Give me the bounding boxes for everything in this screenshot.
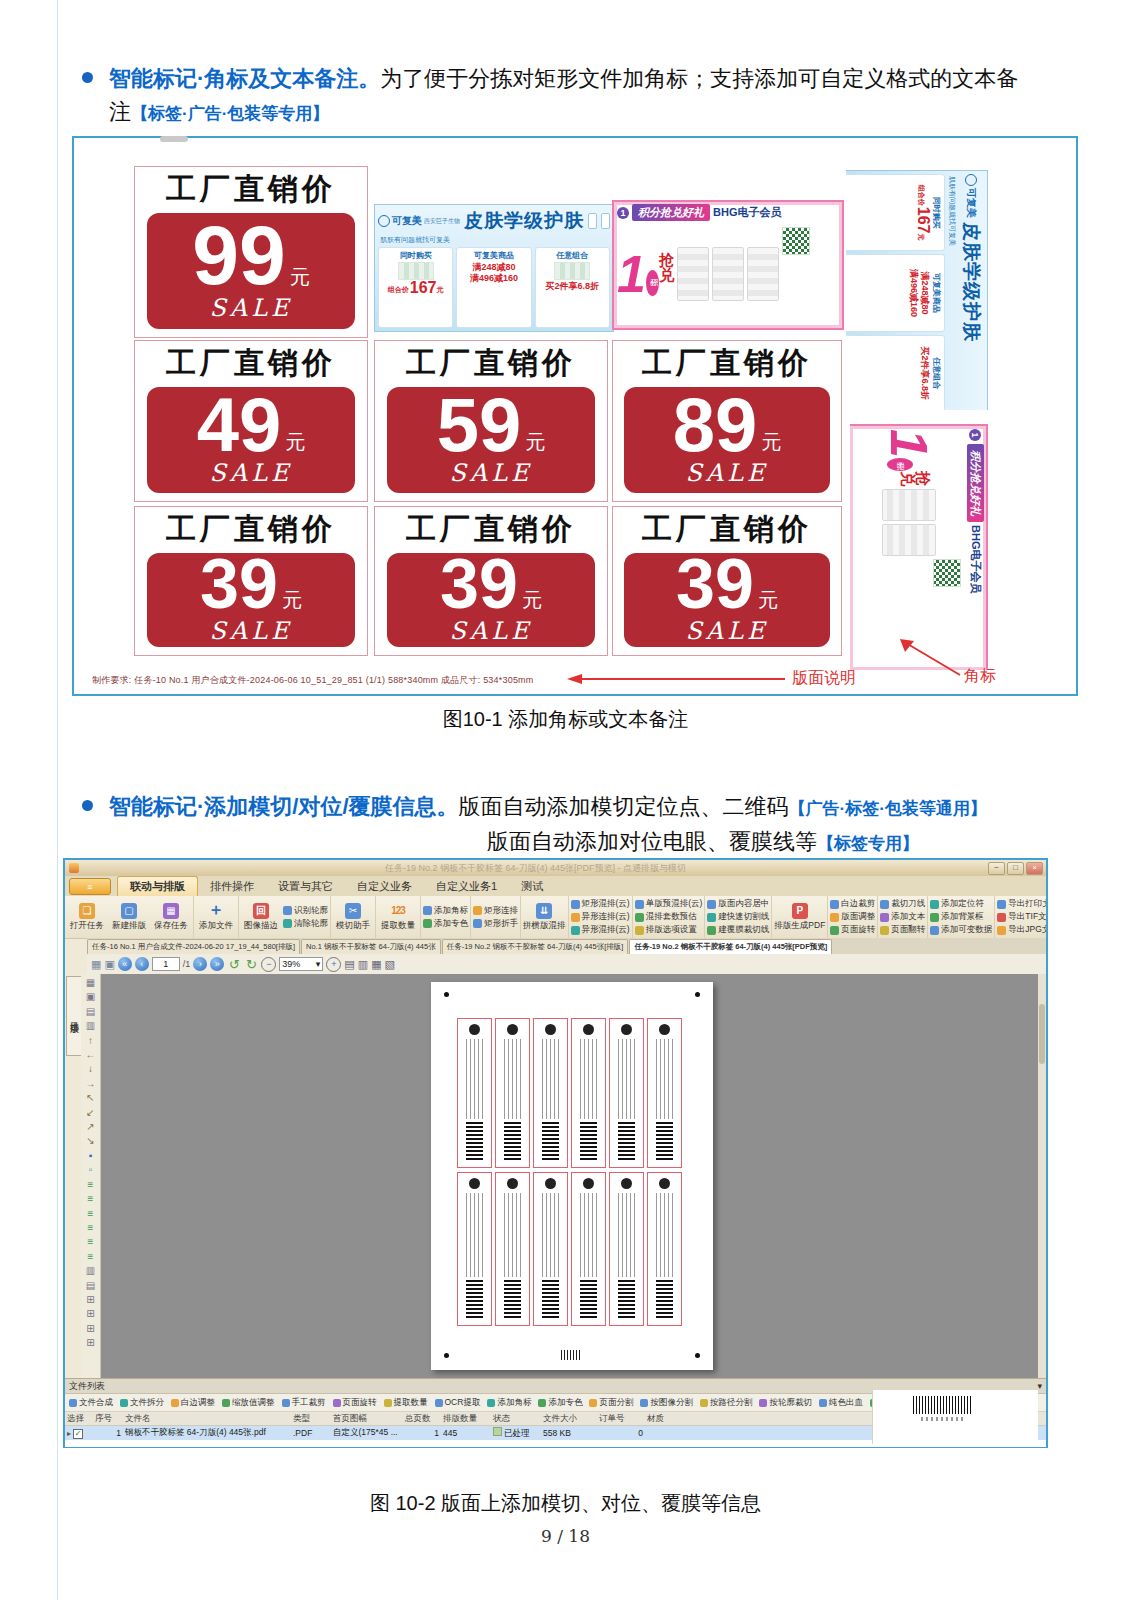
export-jpg-icon <box>997 926 1006 935</box>
label-barcode <box>466 1122 483 1162</box>
preview-nav-bar: ▦ ▣ « ‹ 1 /1 › » ↺ ↻ − 39%▾ + ▤ ▥ ▦ ▧ <box>87 954 1046 975</box>
price-header: 工厂直销价 <box>166 169 336 210</box>
doc-tab-4-pdf-preview[interactable]: 任务-19 No.2 钢板不干胶标签 64-刀版(4) 445张[PDF预览] <box>629 939 832 954</box>
extract-qty-icon <box>384 1399 392 1407</box>
grid-tool-icon[interactable]: ▦ <box>86 976 95 990</box>
crop-by-outline-icon <box>759 1399 767 1407</box>
app-logo-icon <box>69 863 79 873</box>
figure1-screenshot: 工厂直销价 99元 SALE 工厂直销价 49元SALE 工厂直销价 59元SA… <box>72 136 1078 696</box>
file-list-title: 文件列表 <box>69 1380 105 1393</box>
layout-facing-icon[interactable]: ▥ <box>358 958 368 971</box>
window-title: 任务-19 No.2 钢板不干胶标签 64-刀版(4) 445张[PDF预览] … <box>83 862 988 875</box>
title-bar: 任务-19 No.2 钢板不干胶标签 64-刀版(4) 445张[PDF预览] … <box>65 860 1046 877</box>
rotate-right-button[interactable]: ↻ <box>244 957 258 971</box>
preview-barcode <box>913 1396 971 1414</box>
page-total-label: /1 <box>183 959 191 969</box>
rect-fold-icon <box>473 919 482 928</box>
file-merge-icon <box>69 1399 77 1407</box>
recognize-outline-icon <box>283 906 292 915</box>
thumbnail-view-icon[interactable]: ▦ <box>91 958 101 971</box>
align-top-icon[interactable]: ≡ <box>88 1221 94 1235</box>
align-left-icon[interactable]: ≡ <box>88 1178 94 1192</box>
page-number: 9 / 18 <box>0 1526 1131 1546</box>
snap-cell-icon[interactable]: ▫ <box>89 1163 93 1177</box>
product-bottle-icon <box>588 213 597 229</box>
split-by-path-icon <box>700 1399 708 1407</box>
points-ad-rotated: 1积分抢兑好礼BHG电子会员 1积分抢兑 <box>850 424 988 670</box>
rect-mix-cloud-icon <box>571 900 580 909</box>
table-layout-icon[interactable]: ⊞ <box>86 1307 94 1321</box>
app-window: 任务-19 No.2 钢板不干胶标签 64-刀版(4) 445张[PDF预览] … <box>65 860 1046 1446</box>
bullet2-body2: 版面自动添加对位电眼、覆膜线等 <box>487 829 817 854</box>
add-text-icon <box>880 913 889 922</box>
recognize-outline-button[interactable]: 识别轮廓 <box>283 905 328 917</box>
image-stroke-button[interactable]: 回图像描边 <box>241 903 281 932</box>
image-stroke-icon: 回 <box>253 903 269 919</box>
sheet-barcode-mark <box>561 1350 581 1360</box>
bullet2-tag2: 【标签专用】 <box>817 834 919 853</box>
move-left-icon[interactable]: ← <box>86 1048 96 1062</box>
center-content-icon <box>707 900 716 909</box>
page-flip-icon <box>880 926 889 935</box>
move-up-left-icon[interactable]: ↖ <box>86 1091 94 1105</box>
split-by-path-button[interactable]: 按路径分割 <box>700 1397 753 1409</box>
file-merge-button[interactable]: 文件合成 <box>69 1397 113 1409</box>
imposed-sheet <box>431 982 713 1370</box>
label-item <box>647 1172 682 1326</box>
add-background-frame-button[interactable]: 添加背景框 <box>930 911 992 923</box>
table-layout-icon[interactable]: ⊞ <box>86 1322 94 1336</box>
bullet1-body: 为了便于分拣对矩形文件加角标；支持添加可自定义格式的文本备 <box>380 66 1018 91</box>
single-plate-premix-button[interactable]: 单版预混排(云) <box>635 898 703 910</box>
shape-mix-cloud-button[interactable]: 异形混排(云) <box>571 924 630 936</box>
label-logo-icon <box>469 1024 480 1035</box>
preview-canvas[interactable] <box>101 974 1038 1378</box>
new-imposition-icon: ▢ <box>121 903 137 919</box>
page-split-icon <box>589 1399 597 1407</box>
sale-label: SALE <box>209 294 292 322</box>
skincare-ad-rotated: 可复美 皮肤学级护肤 肌肤有问题就找可复美 同时购买组合价167元 可复美商品满… <box>846 170 988 410</box>
scale-adjust-button[interactable]: 缩放值调整 <box>222 1397 275 1409</box>
mixed-imposition-button[interactable]: ⇊拼横版混排 <box>523 903 566 932</box>
solid-bleed-icon <box>819 1399 827 1407</box>
save-task-button[interactable]: ▦保存任务 <box>151 903 191 932</box>
canvas-scrollbar[interactable] <box>1038 974 1046 1378</box>
app-menu-button[interactable]: ≡ <box>69 878 111 895</box>
bullet-icon <box>82 72 93 83</box>
mix-count-estimate-button[interactable]: 混排套数预估 <box>635 911 703 923</box>
add-corner-mark-button[interactable]: 添加角标 <box>487 1397 531 1409</box>
move-up-right-icon[interactable]: ↗ <box>86 1120 94 1134</box>
status-label: 已处理 <box>504 1428 530 1438</box>
single-plate-premix-icon <box>635 900 644 909</box>
kefumei-logo-icon <box>965 174 977 186</box>
clear-outline-icon <box>283 919 292 928</box>
prev-page-button[interactable]: ‹ <box>135 957 149 971</box>
mix-count-estimate-icon <box>635 913 644 922</box>
manual-crop-button[interactable]: 手工裁剪 <box>282 1397 326 1409</box>
figure2-caption: 图 10-2 版面上添加模切、对位、覆膜等信息 <box>0 1490 1131 1517</box>
registration-dot <box>695 992 700 997</box>
imposition-options-icon <box>635 926 644 935</box>
close-button[interactable]: × <box>1026 862 1043 875</box>
callout-layout-note: 版面说明 <box>792 668 856 689</box>
doc-tab-1[interactable]: 任务-16 No.1 用户合成文件-2024-06-20 17_19_44_58… <box>87 939 300 954</box>
registration-dot <box>444 1353 449 1358</box>
label-item <box>495 1172 530 1326</box>
white-margin-crop-icon <box>830 900 839 909</box>
distribute-h-icon[interactable]: ▥ <box>86 1264 95 1278</box>
ocr-extract-button[interactable]: OCR提取 <box>435 1397 481 1409</box>
add-spot-color-button[interactable]: 添加专色 <box>538 1397 582 1409</box>
add-corner-mark-button[interactable]: 添加角标 <box>423 905 468 917</box>
ad-title: 皮肤学级护肤 <box>464 208 584 234</box>
bullet2-body: 版面自动添加模切定位点、二维码 <box>459 794 789 819</box>
add-file-icon: ＋ <box>208 903 224 919</box>
snap-grid-icon[interactable]: ▪ <box>89 1149 93 1163</box>
bullet1-body2: 注 <box>109 99 131 124</box>
bullet-icon <box>82 800 93 811</box>
page-left-rule <box>57 0 58 1600</box>
tab-custom-business-1[interactable]: 自定义业务1 <box>424 877 509 896</box>
layout-grid-icon[interactable]: ▦ <box>371 958 381 971</box>
move-down-right-icon[interactable]: ↘ <box>86 1134 94 1148</box>
laminate-cut-line-button[interactable]: 建覆膜裁切线 <box>707 924 769 936</box>
row-marker-icon: ▸ <box>67 1429 71 1438</box>
distribute-v-icon[interactable]: ▤ <box>86 1279 95 1293</box>
rect-serial-button[interactable]: 矩形连排 <box>473 905 518 917</box>
add-spot-color-icon <box>423 919 432 928</box>
label-item <box>533 1172 568 1326</box>
figure1-caption: 图10-1 添加角标或文本备注 <box>0 706 1131 733</box>
preview-barcode-caption <box>921 1417 963 1421</box>
zoom-in-button[interactable]: + <box>326 957 341 972</box>
white-margin-adjust-button[interactable]: 白边调整 <box>171 1397 215 1409</box>
extract-quantity-icon: 123 <box>390 903 406 919</box>
rotate-left-button[interactable]: ↺ <box>227 957 241 971</box>
align-bottom-icon[interactable]: ≡ <box>88 1250 94 1264</box>
diecut-helper-button[interactable]: ✂模切助手 <box>333 903 373 932</box>
add-registration-mark-icon <box>930 900 939 909</box>
page-rotate-icon <box>830 926 839 935</box>
add-corner-mark-icon <box>487 1399 495 1407</box>
open-task-button[interactable]: ❏打开任务 <box>67 903 107 932</box>
open-task-icon: ❏ <box>79 903 95 919</box>
minimize-button[interactable]: − <box>988 862 1005 875</box>
label-preview-pane <box>872 1390 1038 1444</box>
label-item <box>457 1018 492 1168</box>
bullet-corner-mark: 智能标记·角标及文本备注。为了便于分拣对矩形文件加角标；支持添加可自定义格式的文… <box>82 62 1082 130</box>
figure1-notch <box>160 136 188 142</box>
page-rotate-button[interactable]: 页面旋转 <box>333 1397 377 1409</box>
cut-knife-line-button[interactable]: 裁切刀线 <box>880 898 925 910</box>
label-item <box>533 1018 568 1168</box>
move-up-icon[interactable]: ↑ <box>88 1034 93 1048</box>
qr-code <box>933 559 961 587</box>
diecut-helper-icon: ✂ <box>345 903 361 919</box>
new-imposition-button[interactable]: ▢新建排版 <box>109 903 149 932</box>
price-box: 99元 SALE <box>147 213 356 329</box>
price-unit: 元 <box>290 269 310 286</box>
maximize-button[interactable]: □ <box>1007 862 1024 875</box>
page-flip-button[interactable]: 页面翻转 <box>880 924 925 936</box>
ribbon-tab-bar: ≡ 联动与排版 排件操作 设置与其它 自定义业务 自定义业务1 测试 <box>65 876 1046 896</box>
shape-serial-cloud-button[interactable]: 异形连排(云) <box>571 911 630 923</box>
label-text-lines <box>466 1039 483 1119</box>
quick-cut-line-icon <box>707 913 716 922</box>
dropdown-arrow-icon: ▾ <box>316 959 321 969</box>
solid-bleed-button[interactable]: 纯色出血 <box>819 1397 863 1409</box>
split-by-image-icon <box>640 1399 648 1407</box>
laminate-cut-line-icon <box>707 926 716 935</box>
add-file-button[interactable]: ＋添加文件 <box>196 903 236 932</box>
gift-product-thumb <box>747 247 779 301</box>
cut-knife-line-icon <box>880 900 889 909</box>
table-layout-icon[interactable]: ⊞ <box>86 1336 94 1350</box>
manual-page: 智能标记·角标及文本备注。为了便于分拣对矩形文件加角标；支持添加可自定义格式的文… <box>0 0 1131 1600</box>
move-down-icon[interactable]: ↓ <box>88 1062 93 1076</box>
ribbon-toolbar: ❏打开任务 ▢新建排版 ▦保存任务 ＋添加文件 回图像描边 识别轮廓 清除轮廓 … <box>65 896 1046 939</box>
selected-imposition-side-tab[interactable]: 已选排版 <box>66 976 82 1056</box>
add-registration-mark-button[interactable]: 添加定位符 <box>930 898 992 910</box>
table-layout-icon[interactable]: ⊞ <box>86 1293 94 1307</box>
member-label: BHG电子会员 <box>713 205 781 220</box>
callout-corner-mark: 角标 <box>964 666 996 687</box>
bullet-diecut-mark: 智能标记·添加模切/对位/覆膜信息。版面自动添加模切定位点、二维码【广告·标签·… <box>82 790 1082 860</box>
layout-adjust-button[interactable]: 版面调整 <box>830 911 875 923</box>
white-margin-adjust-icon <box>171 1399 179 1407</box>
export-tif-button[interactable]: 导出TIF文件 <box>997 911 1046 923</box>
kefumei-logo-icon <box>378 215 390 227</box>
shape-serial-cloud-icon <box>571 913 580 922</box>
points-ad-title: 积分抢兑好礼 <box>632 204 710 221</box>
registration-dot <box>695 1353 700 1358</box>
label-item <box>571 1172 606 1326</box>
skincare-ad: 可复美西安巨子生物 皮肤学级护肤 肌肤有问题就找可复美 同时购买 组合价167元… <box>374 204 614 332</box>
export-tif-icon <box>997 913 1006 922</box>
export-print-file-button[interactable]: 导出打印文件 <box>997 898 1046 910</box>
rect-serial-icon <box>473 906 482 915</box>
label-item <box>571 1018 606 1168</box>
label-item <box>457 1172 492 1326</box>
tab-settings-other[interactable]: 设置与其它 <box>266 877 345 896</box>
export-jpg-button[interactable]: 导出JPG文件 <box>997 924 1046 936</box>
tab-linkage-imposition[interactable]: 联动与排版 <box>117 876 198 896</box>
qr-code <box>782 227 810 255</box>
gift-product-thumb <box>882 524 936 556</box>
clear-outline-button[interactable]: 清除轮廓 <box>283 918 328 930</box>
layout-tile-icon[interactable]: ▧ <box>385 958 395 971</box>
price-tag-89: 工厂直销价 89元SALE <box>612 340 842 502</box>
price-tag-49: 工厂直销价 49元SALE <box>134 340 368 502</box>
page-split-button[interactable]: 页面分割 <box>589 1397 633 1409</box>
tab-test[interactable]: 测试 <box>509 877 555 896</box>
rect-fold-button[interactable]: 矩形折手 <box>473 918 518 930</box>
product-bottle-icon <box>601 213 610 229</box>
rect-mix-cloud-button[interactable]: 矩形混排(云) <box>571 898 630 910</box>
move-right-icon[interactable]: → <box>86 1077 96 1091</box>
file-split-button[interactable]: 文件拆分 <box>120 1397 164 1409</box>
manual-crop-icon <box>282 1399 290 1407</box>
zoom-out-button[interactable]: − <box>261 957 276 972</box>
shape-mix-cloud-icon <box>571 926 580 935</box>
label-item <box>609 1018 644 1168</box>
layout-single-icon[interactable]: ▤ <box>344 958 354 971</box>
zoom-level-select[interactable]: 39%▾ <box>279 957 323 971</box>
points-badge-icon: 1 <box>617 207 629 219</box>
ocr-extract-icon <box>435 1399 443 1407</box>
page-rotate-icon <box>333 1399 341 1407</box>
save-task-icon: ▦ <box>163 903 179 919</box>
page-number-input[interactable]: 1 <box>152 957 180 971</box>
left-tool-strip: ▦ ▣ ▤ ▥ ↑ ← ↓ → ↖ ↙ ↗ ↘ ▪ ▫ ≡ ≡ ≡ ≡ ≡ ≡ <box>81 974 101 1378</box>
panel-collapse-button[interactable]: ▾ <box>1037 1381 1042 1391</box>
scale-adjust-icon <box>222 1399 230 1407</box>
align-middle-icon[interactable]: ≡ <box>88 1235 94 1249</box>
points-ad: 1 积分抢兑好礼 BHG电子会员 1积分抢兑 <box>612 200 844 330</box>
add-corner-mark-icon <box>423 906 432 915</box>
crop-by-outline-button[interactable]: 按轮廓裁切 <box>759 1397 812 1409</box>
brand-name: 可复美 <box>392 214 422 228</box>
extract-qty-button[interactable]: 提取数量 <box>384 1397 428 1409</box>
add-variable-data-button[interactable]: 添加可变数据 <box>930 924 992 936</box>
gift-product-thumb <box>882 489 936 521</box>
tab-custom-business[interactable]: 自定义业务 <box>345 877 424 896</box>
price-tag-39b: 工厂直销价 39元SALE <box>374 506 608 656</box>
layout-adjust-icon <box>830 913 839 922</box>
align-right-icon[interactable]: ≡ <box>88 1207 94 1221</box>
registration-dot <box>444 992 449 997</box>
imposition-options-button[interactable]: 排版选项设置 <box>635 924 703 936</box>
label-item <box>647 1018 682 1168</box>
price-tag-39a: 工厂直销价 39元SALE <box>134 506 368 656</box>
next-page-button[interactable]: › <box>193 957 207 971</box>
image-tool-icon[interactable]: ▤ <box>86 1005 95 1019</box>
extract-quantity-button[interactable]: 123提取数量 <box>378 903 418 932</box>
price-tag-59: 工厂直销价 59元SALE <box>374 340 608 502</box>
generate-pdf-button[interactable]: P排版生成PDF <box>774 903 825 932</box>
single-view-icon[interactable]: ▣ <box>104 958 114 971</box>
mixed-imposition-icon: ⇊ <box>536 903 552 919</box>
tab-part-operations[interactable]: 排件操作 <box>198 877 266 896</box>
doc-tab-3[interactable]: 任务-19 No.2 钢板不干胶标签 64-刀版(4) 445张[排版] <box>442 939 629 954</box>
bullet1-title: 智能标记·角标及文本备注。 <box>109 66 380 91</box>
bullet2-tag1: 【广告·标签·包装等通用】 <box>789 799 987 818</box>
generate-pdf-icon: P <box>792 903 808 919</box>
bullet2-title: 智能标记·添加模切/对位/覆膜信息。 <box>109 794 459 819</box>
move-down-left-icon[interactable]: ↙ <box>86 1106 94 1120</box>
center-content-button[interactable]: 版面内容居中 <box>707 898 769 910</box>
price-tag-99: 工厂直销价 99元 SALE <box>134 166 368 338</box>
gift-product-thumb <box>712 247 744 301</box>
row-checkbox[interactable]: ✓ <box>73 1429 83 1439</box>
page-rotate-button[interactable]: 页面旋转 <box>830 924 875 936</box>
file-split-icon <box>120 1399 128 1407</box>
add-spot-color-icon <box>538 1399 546 1407</box>
add-variable-data-icon <box>930 926 939 935</box>
white-margin-crop-button[interactable]: 白边裁剪 <box>830 898 875 910</box>
label-item <box>495 1018 530 1168</box>
doc-tab-2[interactable]: No.1 钢板不干胶标签 64-刀版(4) 445张 <box>301 939 441 954</box>
status-icon <box>493 1427 502 1436</box>
bullet1-tag: 【标签·广告·包装等专用】 <box>131 104 329 123</box>
label-item <box>609 1172 644 1326</box>
add-background-frame-icon <box>930 913 939 922</box>
last-page-button[interactable]: » <box>210 957 224 971</box>
export-print-file-icon <box>997 900 1006 909</box>
gift-product-thumb <box>677 247 709 301</box>
first-page-button[interactable]: « <box>118 957 132 971</box>
document-tab-bar: 任务-16 No.1 用户合成文件-2024-06-20 17_19_44_58… <box>87 938 1046 954</box>
price-tag-39c: 工厂直销价 39元SALE <box>612 506 842 656</box>
add-spot-color-button[interactable]: 添加专色 <box>423 918 468 930</box>
quick-cut-line-button[interactable]: 建快速切割线 <box>707 911 769 923</box>
page-tool-icon[interactable]: ▥ <box>86 1019 95 1033</box>
figure2-screenshot: 任务-19 No.2 钢板不干胶标签 64-刀版(4) 445张[PDF预览] … <box>63 858 1048 1448</box>
sheet-production-note: 制作要求: 任务-10 No.1 用户合成文件-2024-06-06 10_51… <box>92 674 534 687</box>
split-by-image-button[interactable]: 按图像分割 <box>640 1397 693 1409</box>
add-text-button[interactable]: 添加文本 <box>880 911 925 923</box>
copy-tool-icon[interactable]: ▣ <box>86 990 95 1004</box>
price-value: 99 <box>192 220 285 291</box>
align-center-icon[interactable]: ≡ <box>88 1192 94 1206</box>
product-thumb <box>398 262 434 280</box>
product-thumb <box>554 262 590 280</box>
